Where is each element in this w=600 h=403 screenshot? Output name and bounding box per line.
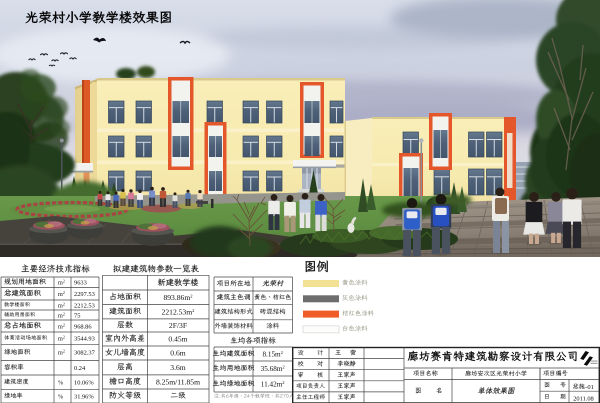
svg-text:%: %	[58, 379, 63, 386]
svg-text:3544.93: 3544.93	[74, 335, 95, 342]
svg-text:8.25m/11.85m: 8.25m/11.85m	[156, 378, 200, 387]
svg-text:0.6m: 0.6m	[170, 349, 185, 358]
svg-text:0.24: 0.24	[74, 365, 86, 372]
svg-text:10.06%: 10.06%	[74, 379, 94, 386]
svg-text:%: %	[58, 393, 63, 400]
svg-text:968.86: 968.86	[74, 323, 92, 330]
svg-text:3.6m: 3.6m	[170, 363, 185, 372]
svg-text:8.15m2: 8.15m2	[262, 350, 283, 359]
svg-text:31.96%: 31.96%	[74, 393, 94, 400]
svg-text:0.45m: 0.45m	[168, 335, 187, 344]
svg-text:2297.53: 2297.53	[74, 291, 95, 298]
svg-text:2F/3F: 2F/3F	[169, 321, 187, 330]
svg-text:9633: 9633	[74, 280, 87, 287]
svg-text:2212.53m2: 2212.53m2	[162, 307, 196, 316]
svg-text:75: 75	[74, 312, 80, 319]
svg-text:893.86m2: 893.86m2	[163, 293, 193, 302]
svg-text:35.68m2: 35.68m2	[261, 365, 286, 374]
svg-text:2212.53: 2212.53	[74, 302, 95, 309]
svg-text:2011.08: 2011.08	[573, 396, 594, 403]
svg-text:3082.37: 3082.37	[74, 350, 96, 357]
svg-text:11.42m2: 11.42m2	[261, 380, 286, 389]
svg-text:-01: -01	[585, 384, 594, 391]
